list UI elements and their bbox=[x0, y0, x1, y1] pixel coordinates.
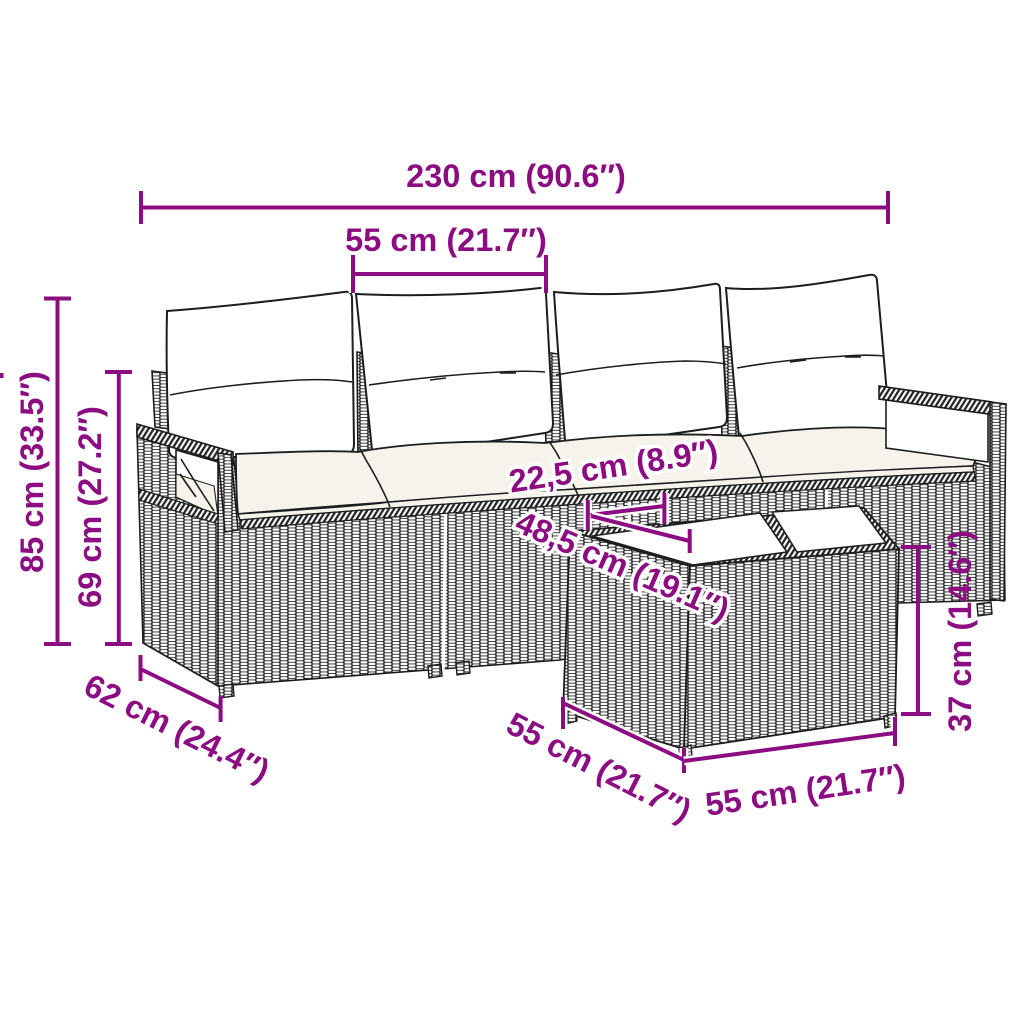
svg-text:37 cm (14.6″): 37 cm (14.6″) bbox=[942, 530, 978, 732]
svg-text:230 cm (90.6″): 230 cm (90.6″) bbox=[406, 158, 626, 194]
svg-text:55 cm (21.7″): 55 cm (21.7″) bbox=[345, 222, 547, 258]
svg-text:69 cm (27.2″): 69 cm (27.2″) bbox=[72, 406, 108, 608]
svg-text:85 cm (33.5″): 85 cm (33.5″) bbox=[14, 371, 50, 573]
